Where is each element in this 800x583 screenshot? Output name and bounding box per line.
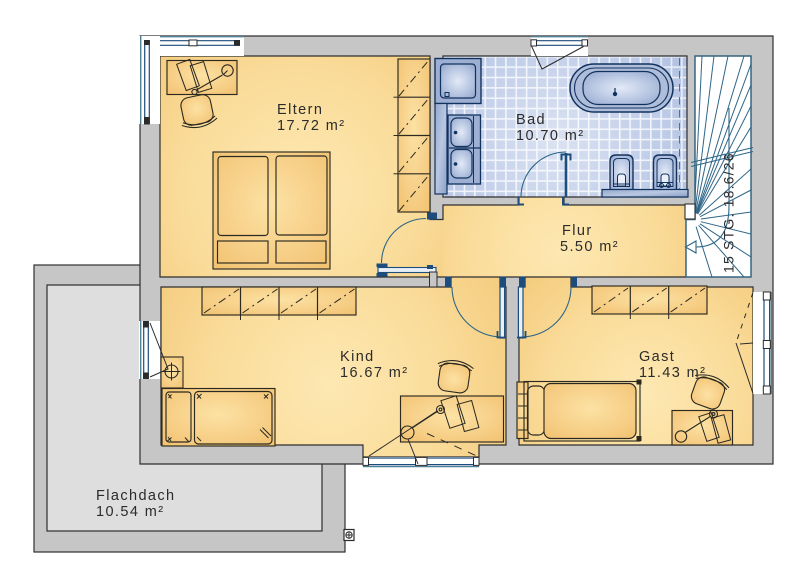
svg-text:Flur: Flur (562, 223, 593, 239)
svg-text:5.50 m²: 5.50 m² (560, 239, 619, 255)
svg-text:Kind: Kind (340, 349, 375, 365)
svg-text:16.67 m²: 16.67 m² (340, 365, 408, 381)
svg-text:Gast: Gast (639, 349, 675, 365)
svg-text:15 STG. 18.6/26: 15 STG. 18.6/26 (721, 152, 737, 273)
svg-text:10.54 m²: 10.54 m² (96, 504, 164, 520)
svg-text:11.43 m²: 11.43 m² (639, 365, 706, 381)
svg-text:17.72 m²: 17.72 m² (277, 118, 345, 134)
svg-text:Eltern: Eltern (277, 102, 323, 118)
svg-text:10.70 m²: 10.70 m² (516, 128, 584, 144)
svg-text:Flachdach: Flachdach (96, 488, 176, 504)
svg-text:Bad: Bad (516, 112, 546, 128)
